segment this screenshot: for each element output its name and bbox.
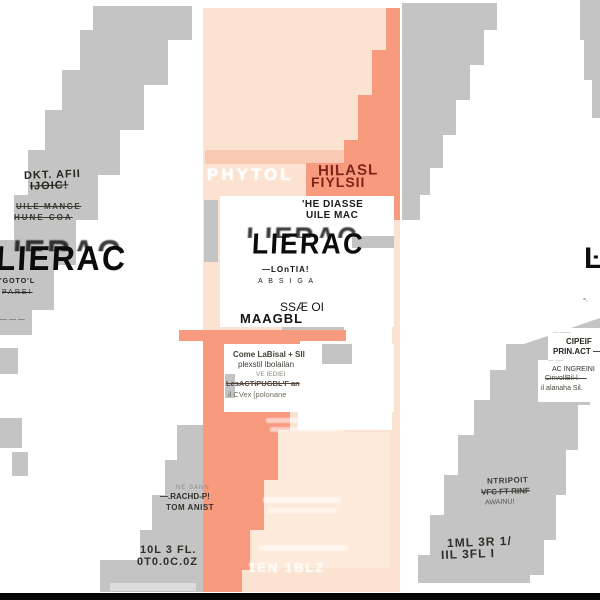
headline-line2: FIYLSII xyxy=(311,175,365,189)
product-name-line2: MAAGBL xyxy=(240,312,303,325)
volume-left-line2: 0T0.0C.0Z xyxy=(137,557,198,568)
front-subtitle-line2: UILE MAC xyxy=(306,211,358,221)
glitch-strip-light xyxy=(110,583,196,591)
brand-logo-sub1: —LOnTIA! xyxy=(262,266,310,274)
right-band-line1: NTRIPOIT xyxy=(487,476,529,485)
right-panel-line1: CIPEIF xyxy=(566,338,592,346)
right-panel-line3: AC INGREINI xyxy=(552,366,595,373)
right-edge-logo-fragment: Ŀ· xyxy=(584,244,600,274)
volume-left-line1: 10L 3 FL. xyxy=(140,545,196,556)
ghost-text-bar-1 xyxy=(266,418,348,423)
headline-ghost: PHYTOL xyxy=(207,166,294,183)
right-band-line3: AWAINU! xyxy=(485,498,515,506)
ingredients-line-2: plexstil lbolailan xyxy=(238,361,294,369)
glitch-block-8 xyxy=(12,452,28,476)
left-dashes: — — — xyxy=(0,316,25,323)
volume-right-line2: IIL 3FL I xyxy=(441,547,495,561)
ghost-text-bar-2 xyxy=(270,427,344,432)
salmon-glitch-bar xyxy=(179,330,346,341)
left-band-subtitle-line1: UILE MANGE xyxy=(16,203,81,211)
ingredients-line-1: Come LaBisal + Sll xyxy=(233,351,305,359)
right-panel-dash2: — ··— xyxy=(548,359,563,364)
ghost-text-bar-5 xyxy=(258,545,348,551)
ingredients-line-3: VE IEDIEI xyxy=(256,372,285,379)
front-subtitle-line1: 'HE DIASSE xyxy=(302,200,363,210)
left-logo-sub1: 'GOTO'L xyxy=(0,278,35,285)
brand-logo: LIERAC xyxy=(251,230,365,259)
right-band-line2: VFC FT RINF xyxy=(481,487,530,497)
right-panel-line5: il alanaha Sil. xyxy=(541,385,583,392)
brand-logo-sub2: A B S I G A xyxy=(258,278,315,285)
ghost-text-bar-3 xyxy=(263,497,341,503)
glitch-block-4 xyxy=(322,344,352,364)
right-edge-fragment-sub: °· xyxy=(583,298,588,305)
bottom-black-bar xyxy=(0,593,600,600)
ghost-text-bar-4 xyxy=(267,508,337,513)
left-band-title-line2: IJOIC! xyxy=(30,180,69,192)
bottom-left-line2: TOM ANIST xyxy=(166,504,214,512)
right-panel-line2: PRIN.ACT — xyxy=(553,348,600,356)
left-band-subtitle-line2: HUNE COA xyxy=(14,214,73,222)
bottom-left-faint-line: NE SANN xyxy=(176,485,210,491)
ghost-volume-text: 1EN 1BLZ xyxy=(248,561,325,574)
right-panel-dash1: ·— —— xyxy=(552,331,570,336)
bottom-left-line1: —.RACHD-P! xyxy=(160,493,210,501)
left-brand-logo: LIERAC xyxy=(0,241,128,276)
right-panel-line4: CinvollBil-l — xyxy=(545,375,587,382)
product-photo: DKT. AFII IJOIC! UILE MANGE HUNE COA LIE… xyxy=(0,0,600,600)
ingredients-line-5: il CVex [polonane xyxy=(228,391,286,399)
ingredients-line-4: LesACTiPUGBL'F an xyxy=(226,380,300,388)
left-logo-sub2: PARE! xyxy=(2,289,33,296)
glitch-block-7 xyxy=(0,418,22,448)
glitch-block-2 xyxy=(204,200,218,262)
glitch-block-6 xyxy=(0,348,18,374)
